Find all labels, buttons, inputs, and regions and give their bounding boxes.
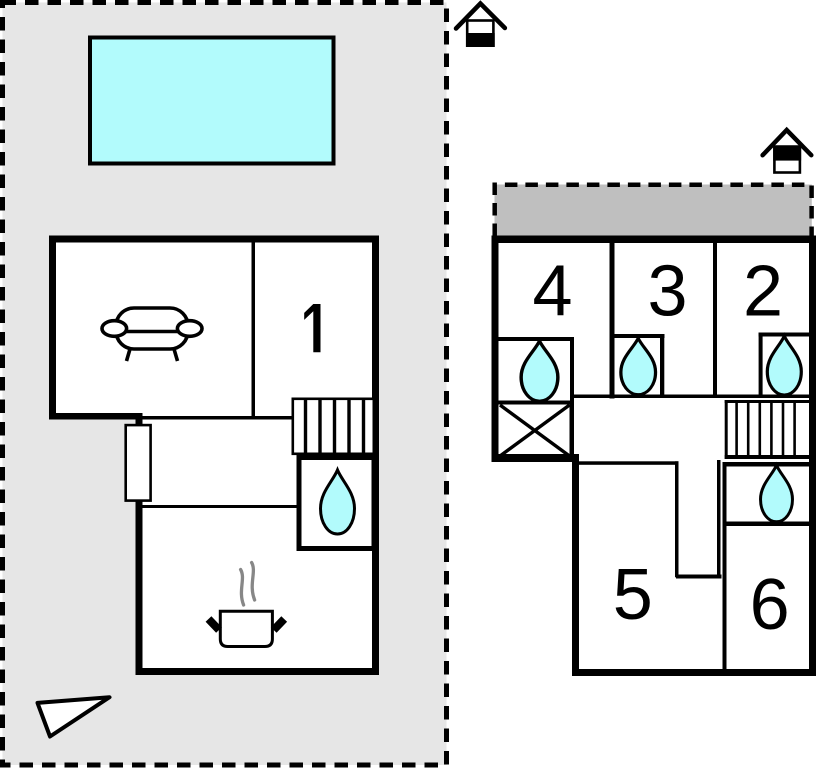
svg-text:4: 4 — [532, 251, 572, 331]
svg-text:6: 6 — [750, 565, 790, 645]
svg-text:3: 3 — [647, 252, 687, 332]
svg-text:2: 2 — [743, 251, 783, 331]
svg-text:5: 5 — [613, 555, 653, 635]
